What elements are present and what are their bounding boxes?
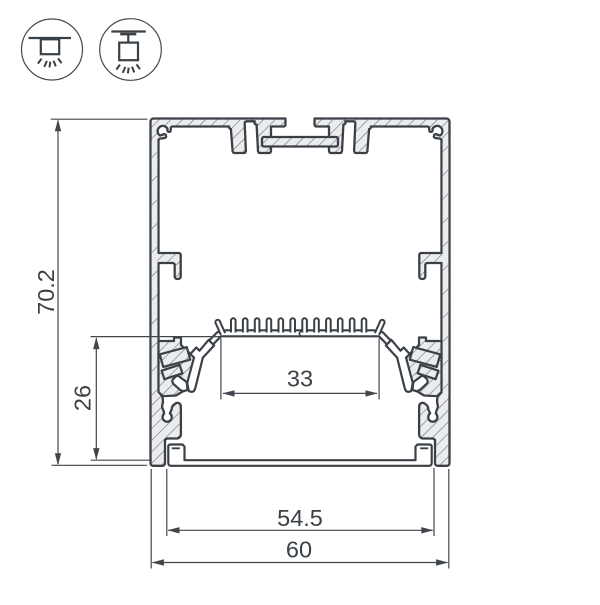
svg-text:54.5: 54.5 [277, 505, 323, 531]
svg-text:33: 33 [287, 366, 313, 392]
svg-text:70.2: 70.2 [33, 269, 59, 315]
svg-text:60: 60 [286, 537, 312, 563]
svg-text:26: 26 [70, 385, 96, 411]
